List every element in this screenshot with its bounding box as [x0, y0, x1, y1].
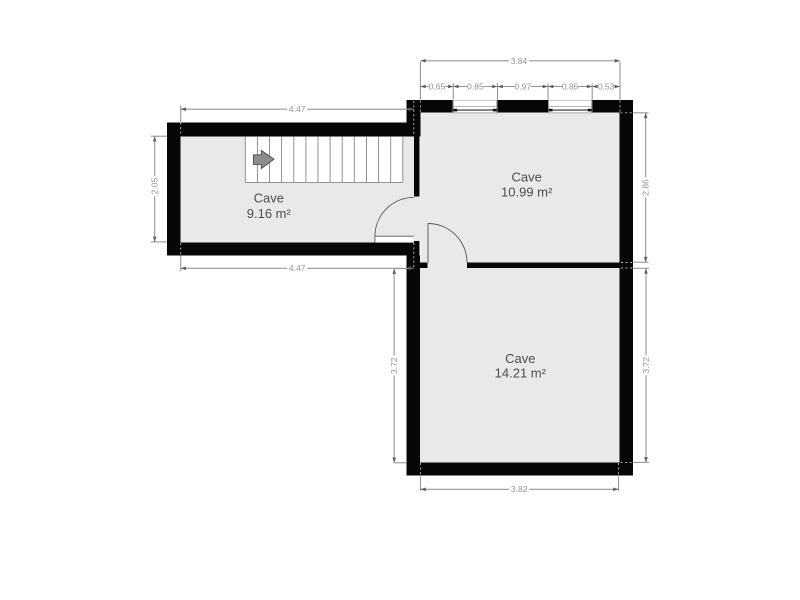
svg-text:10.99 m²: 10.99 m²: [501, 185, 553, 200]
svg-text:9.16 m²: 9.16 m²: [247, 206, 292, 221]
svg-text:Cave: Cave: [254, 191, 284, 206]
svg-text:4.47: 4.47: [289, 263, 306, 273]
svg-text:14.21 m²: 14.21 m²: [495, 366, 547, 381]
svg-text:4.47: 4.47: [289, 104, 306, 114]
svg-text:0.53: 0.53: [598, 81, 615, 91]
svg-text:0.97: 0.97: [515, 81, 532, 91]
svg-text:3.82: 3.82: [511, 484, 528, 494]
svg-text:2.05: 2.05: [150, 178, 160, 195]
svg-text:Cave: Cave: [505, 351, 535, 366]
svg-text:0.85: 0.85: [467, 81, 484, 91]
svg-text:3.84: 3.84: [511, 56, 528, 66]
svg-text:0.65: 0.65: [429, 81, 446, 91]
svg-text:Cave: Cave: [512, 169, 542, 184]
svg-text:0.85: 0.85: [562, 81, 579, 91]
svg-text:2.86: 2.86: [641, 179, 651, 196]
svg-text:3.72: 3.72: [641, 357, 651, 374]
svg-text:3.72: 3.72: [389, 357, 399, 374]
